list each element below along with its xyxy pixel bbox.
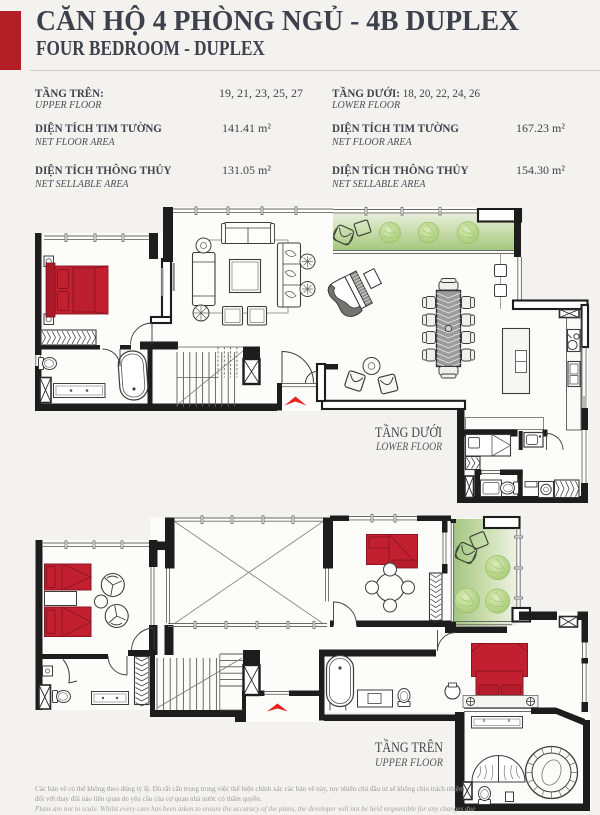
svg-text:UPPER FLOOR: UPPER FLOOR	[375, 757, 443, 769]
svg-text:TẦNG TRÊN: TẦNG TRÊN	[375, 739, 443, 756]
svg-text:LOWER FLOOR: LOWER FLOOR	[375, 441, 442, 453]
svg-text:TẦNG DƯỚI: TẦNG DƯỚI	[375, 424, 442, 441]
